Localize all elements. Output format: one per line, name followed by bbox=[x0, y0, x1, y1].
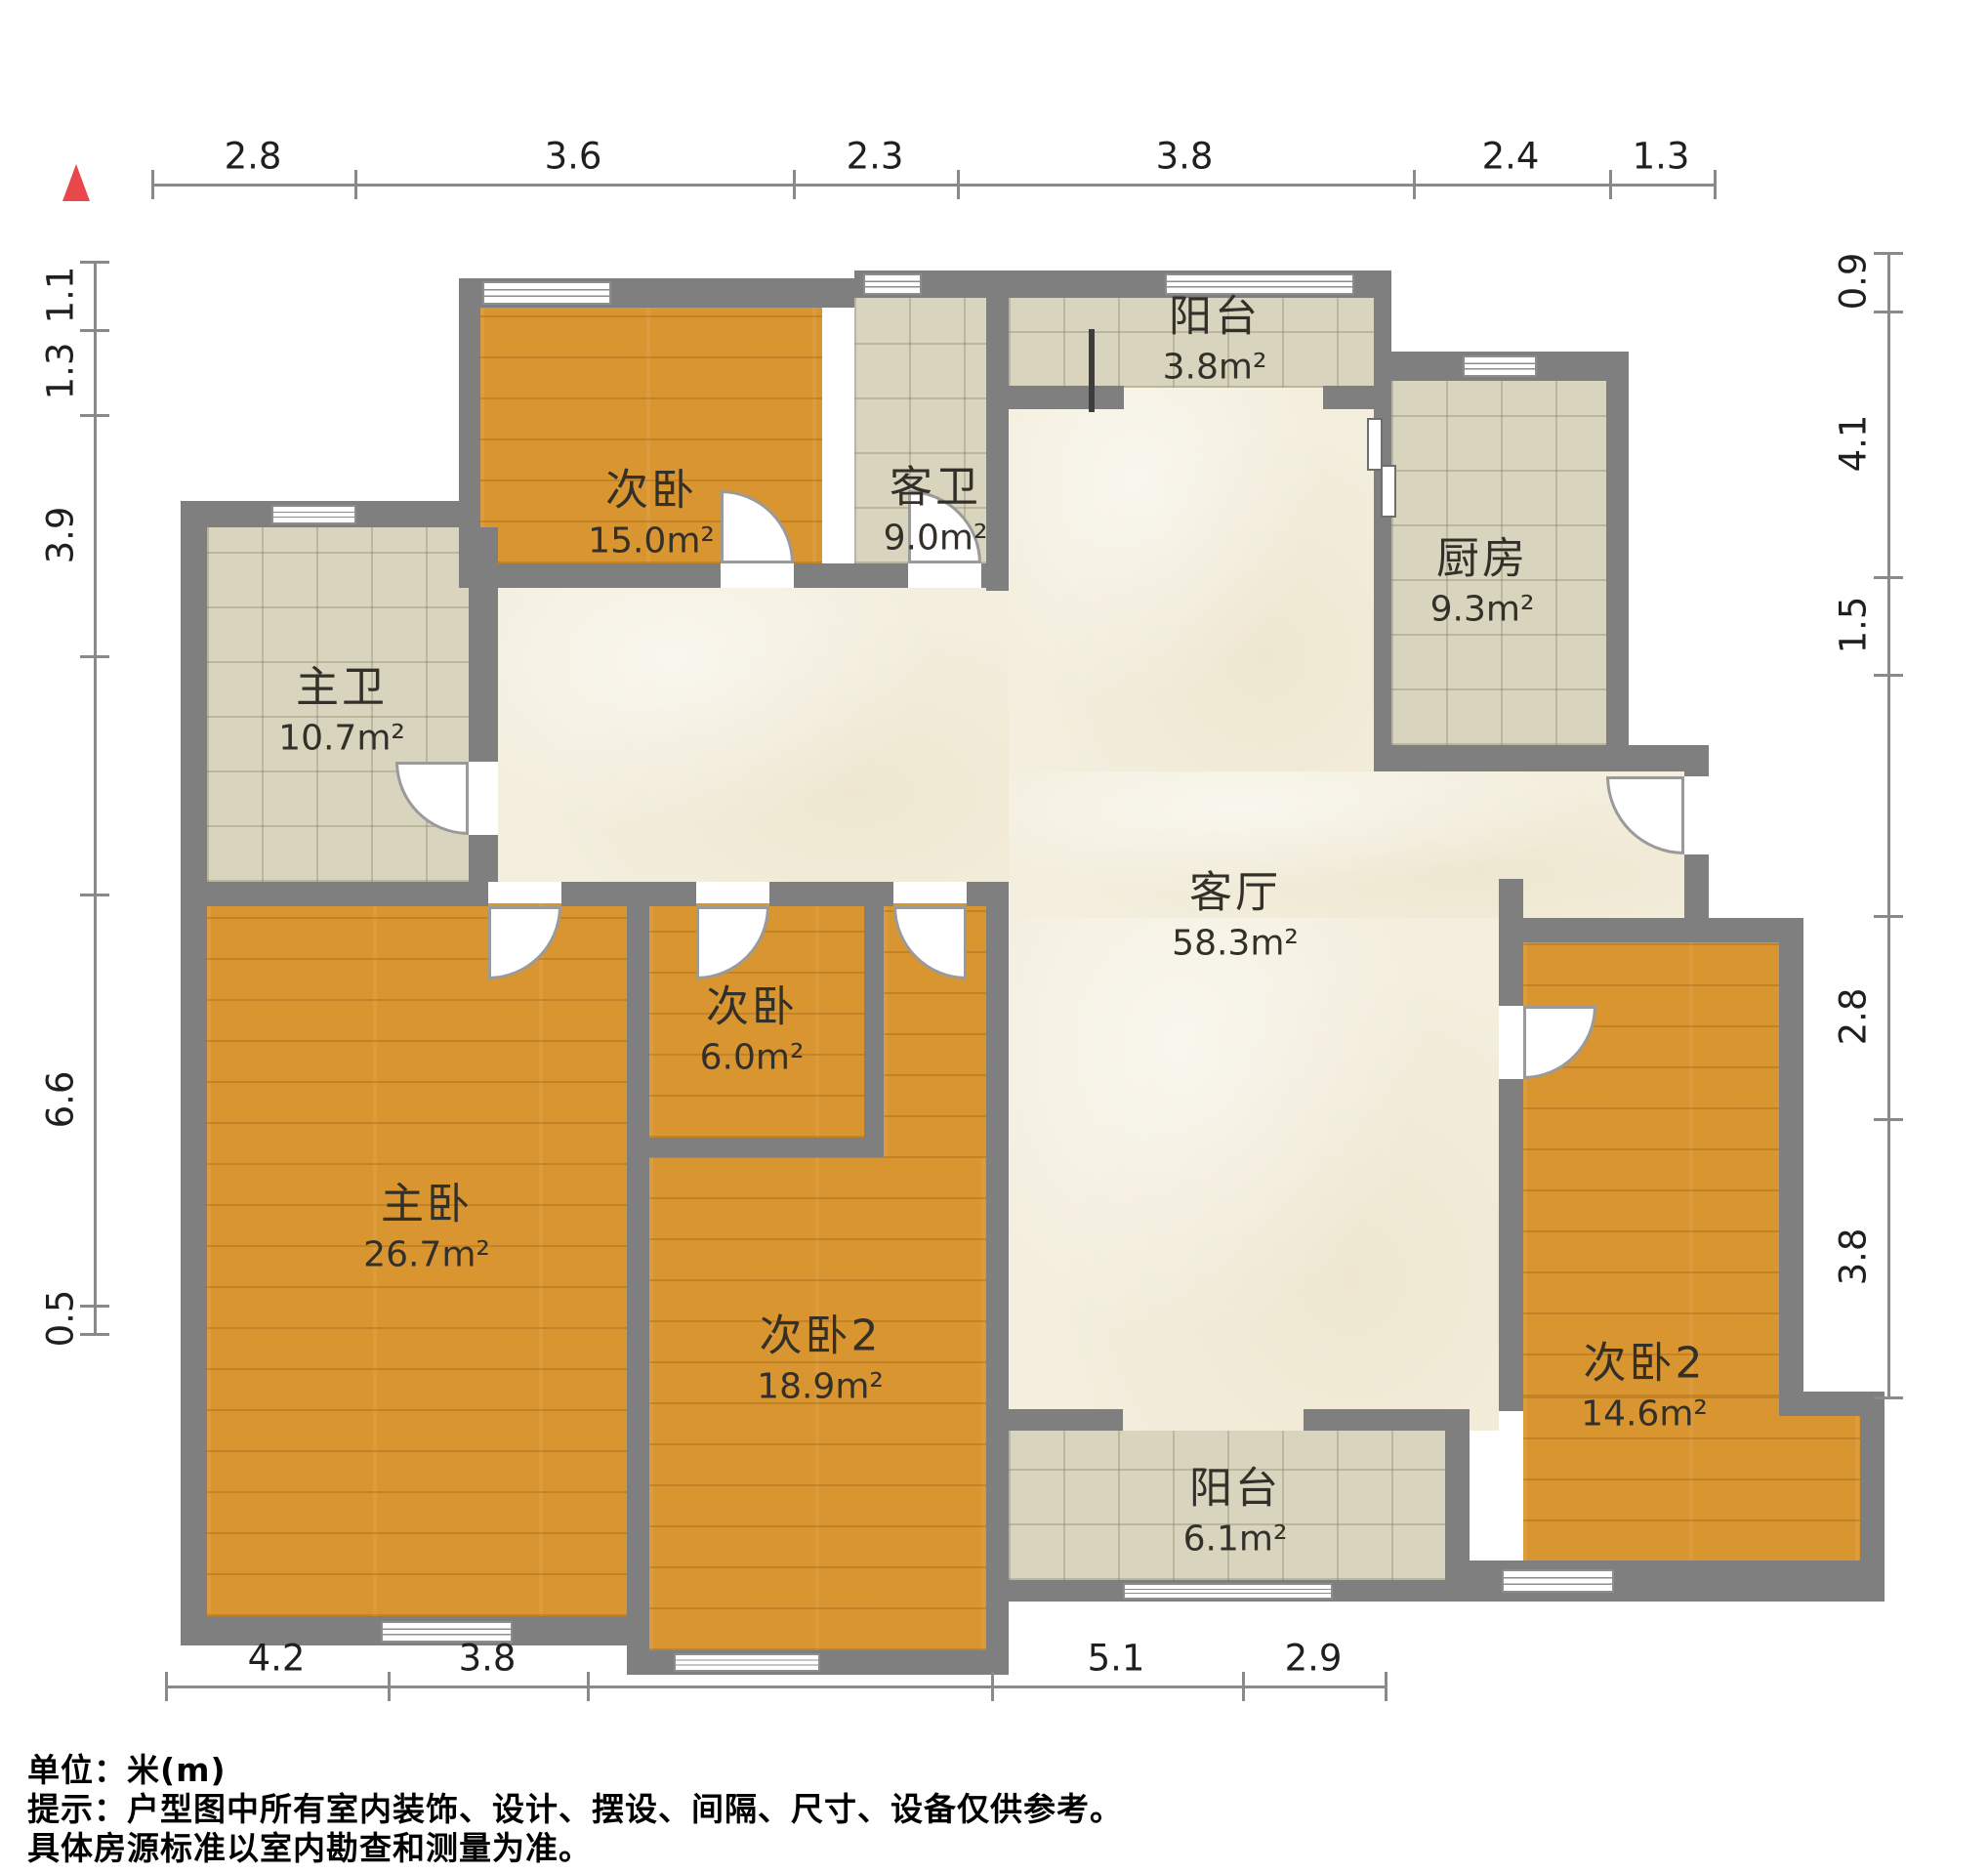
wall bbox=[864, 882, 884, 1138]
room-name: 次卧2 bbox=[757, 1301, 884, 1363]
door-leaf bbox=[721, 563, 794, 588]
room-name: 次卧 bbox=[588, 455, 715, 518]
dim-label: 3.9 bbox=[40, 507, 82, 564]
room-name: 次卧2 bbox=[1581, 1328, 1708, 1391]
dim-label: 1.3 bbox=[1633, 136, 1690, 178]
dim-label: 2.3 bbox=[847, 136, 904, 178]
dim-line-left bbox=[94, 261, 97, 1336]
room-label-bedroom2-right: 次卧2 14.6m² bbox=[1581, 1328, 1708, 1435]
room-living-corridor-floor bbox=[498, 586, 1009, 882]
wall bbox=[794, 563, 854, 588]
wall bbox=[981, 563, 1009, 588]
room-label-bedroom-top-left: 次卧 15.0m² bbox=[588, 455, 715, 562]
dim-label: 2.8 bbox=[1833, 988, 1875, 1046]
dim-tick bbox=[165, 1672, 168, 1701]
wall bbox=[986, 271, 1009, 591]
wall bbox=[469, 835, 498, 882]
dim-line-top bbox=[151, 184, 1714, 187]
room-label-bedroom-small: 次卧 6.0m² bbox=[700, 972, 805, 1078]
dim-tick bbox=[1413, 170, 1416, 199]
window bbox=[1502, 1569, 1614, 1593]
dim-label: 4.2 bbox=[248, 1638, 306, 1680]
dim-tick bbox=[1385, 1672, 1387, 1701]
balcony-frame-line bbox=[1089, 329, 1095, 412]
room-area: 15.0m² bbox=[588, 521, 715, 562]
wall bbox=[1323, 386, 1374, 409]
wall bbox=[469, 527, 498, 762]
door-leaf bbox=[469, 762, 498, 835]
room-name: 阳台 bbox=[1163, 281, 1267, 344]
room-name: 客卫 bbox=[884, 452, 988, 515]
door-leaf bbox=[908, 563, 981, 588]
room-label-balcony-top: 阳台 3.8m² bbox=[1163, 281, 1267, 388]
room-name: 阳台 bbox=[1183, 1453, 1288, 1516]
room-label-bedroom2-middle: 次卧2 18.9m² bbox=[757, 1301, 884, 1407]
room-label-balcony-bottom: 阳台 6.1m² bbox=[1183, 1453, 1288, 1560]
dim-label: 5.1 bbox=[1088, 1638, 1145, 1680]
room-label-kitchen: 厨房 9.3m² bbox=[1430, 523, 1535, 630]
wall bbox=[1606, 352, 1629, 771]
dim-label: 0.9 bbox=[1833, 253, 1875, 311]
dim-tick bbox=[1874, 1396, 1903, 1399]
dim-label: 1.3 bbox=[40, 343, 82, 400]
room-label-living-room: 客厅 58.3m² bbox=[1172, 857, 1299, 964]
dim-label: 3.8 bbox=[1156, 136, 1214, 178]
window bbox=[674, 1653, 820, 1672]
room-area: 3.8m² bbox=[1163, 348, 1267, 388]
dim-tick bbox=[991, 1672, 994, 1701]
dim-label: 6.6 bbox=[40, 1071, 82, 1129]
dim-tick bbox=[80, 414, 109, 417]
dim-label: 0.5 bbox=[40, 1290, 82, 1348]
room-name: 厨房 bbox=[1430, 523, 1535, 586]
dim-tick bbox=[1609, 170, 1612, 199]
window bbox=[1123, 1583, 1333, 1600]
dim-tick bbox=[80, 261, 109, 264]
wall bbox=[627, 882, 649, 1650]
dim-tick bbox=[388, 1672, 391, 1701]
window bbox=[1463, 355, 1537, 377]
dim-label: 3.8 bbox=[1833, 1228, 1875, 1286]
dim-tick bbox=[1714, 170, 1717, 199]
footer-tip-line2: 具体房源标准以室内勘查和测量为准。 bbox=[27, 1822, 592, 1869]
wall bbox=[1860, 1392, 1884, 1602]
door-leaf bbox=[1684, 776, 1709, 854]
wall bbox=[181, 882, 488, 906]
dim-tick bbox=[1874, 1118, 1903, 1121]
window bbox=[482, 281, 611, 305]
room-area: 9.0m² bbox=[884, 519, 988, 559]
sliding-door bbox=[1367, 418, 1383, 471]
room-label-master-bedroom: 主卧 26.7m² bbox=[363, 1169, 490, 1275]
sliding-door bbox=[1381, 465, 1396, 518]
dim-tick bbox=[1874, 674, 1903, 677]
room-area: 58.3m² bbox=[1172, 924, 1299, 964]
room-name: 主卫 bbox=[278, 652, 405, 715]
wall bbox=[986, 882, 1009, 1650]
room-area: 6.0m² bbox=[700, 1038, 805, 1078]
dim-tick bbox=[587, 1672, 590, 1701]
door-leaf bbox=[1499, 1006, 1523, 1079]
room-name: 客厅 bbox=[1172, 857, 1299, 920]
dim-tick bbox=[793, 170, 796, 199]
dim-tick bbox=[80, 329, 109, 332]
dim-line-bottom bbox=[165, 1686, 1385, 1688]
dim-tick bbox=[1874, 311, 1903, 313]
wall bbox=[1009, 386, 1124, 409]
room-label-master-bathroom: 主卫 10.7m² bbox=[278, 652, 405, 759]
wall bbox=[627, 1138, 884, 1157]
wall bbox=[854, 563, 908, 588]
room-area: 6.1m² bbox=[1183, 1519, 1288, 1560]
dim-tick bbox=[80, 894, 109, 896]
dim-label: 2.4 bbox=[1482, 136, 1540, 178]
dim-tick bbox=[151, 170, 154, 199]
wall bbox=[181, 501, 207, 1645]
dim-tick bbox=[957, 170, 960, 199]
wall bbox=[1374, 745, 1709, 771]
wall bbox=[1304, 1409, 1445, 1431]
wall bbox=[1009, 1409, 1123, 1431]
room-living-floor-a bbox=[1009, 388, 1374, 771]
north-arrow-icon bbox=[62, 164, 90, 201]
window bbox=[271, 505, 356, 524]
wall bbox=[1803, 1392, 1884, 1416]
room-name: 主卧 bbox=[363, 1169, 490, 1231]
dim-label: 1.1 bbox=[40, 267, 82, 324]
floorplan-canvas: 次卧 15.0m² 客卫 9.0m² 阳台 3.8m² 厨房 9.3m² 主卫 … bbox=[0, 0, 1988, 1873]
dim-label: 1.5 bbox=[1833, 597, 1875, 654]
room-area: 14.6m² bbox=[1581, 1394, 1708, 1435]
wall bbox=[1523, 918, 1779, 942]
dim-label: 3.6 bbox=[545, 136, 602, 178]
dim-tick bbox=[1874, 915, 1903, 918]
room-living-floor-b bbox=[1009, 771, 1684, 918]
dim-label: 4.1 bbox=[1833, 415, 1875, 473]
room-area: 26.7m² bbox=[363, 1235, 490, 1275]
wall bbox=[459, 563, 721, 588]
room-area: 18.9m² bbox=[757, 1367, 884, 1407]
dim-label: 2.8 bbox=[225, 136, 282, 178]
dim-tick bbox=[80, 1333, 109, 1336]
room-name: 次卧 bbox=[700, 972, 805, 1034]
window bbox=[863, 273, 922, 295]
dim-tick bbox=[80, 1305, 109, 1308]
dim-tick bbox=[1874, 252, 1903, 255]
dim-tick bbox=[1242, 1672, 1245, 1701]
dim-label: 3.8 bbox=[459, 1638, 517, 1680]
room-label-guest-bathroom: 客卫 9.0m² bbox=[884, 452, 988, 559]
room-living-floor-c bbox=[1009, 918, 1499, 1431]
room-area: 9.3m² bbox=[1430, 590, 1535, 630]
dim-tick bbox=[1874, 576, 1903, 579]
dim-tick bbox=[80, 655, 109, 658]
room-area: 10.7m² bbox=[278, 719, 405, 759]
wall bbox=[1445, 1409, 1470, 1582]
dim-tick bbox=[354, 170, 357, 199]
wall bbox=[1499, 1079, 1523, 1411]
dim-line-right bbox=[1887, 252, 1890, 1396]
wall bbox=[1779, 918, 1803, 1416]
dim-label: 2.9 bbox=[1285, 1638, 1343, 1680]
wall bbox=[1499, 879, 1523, 1006]
